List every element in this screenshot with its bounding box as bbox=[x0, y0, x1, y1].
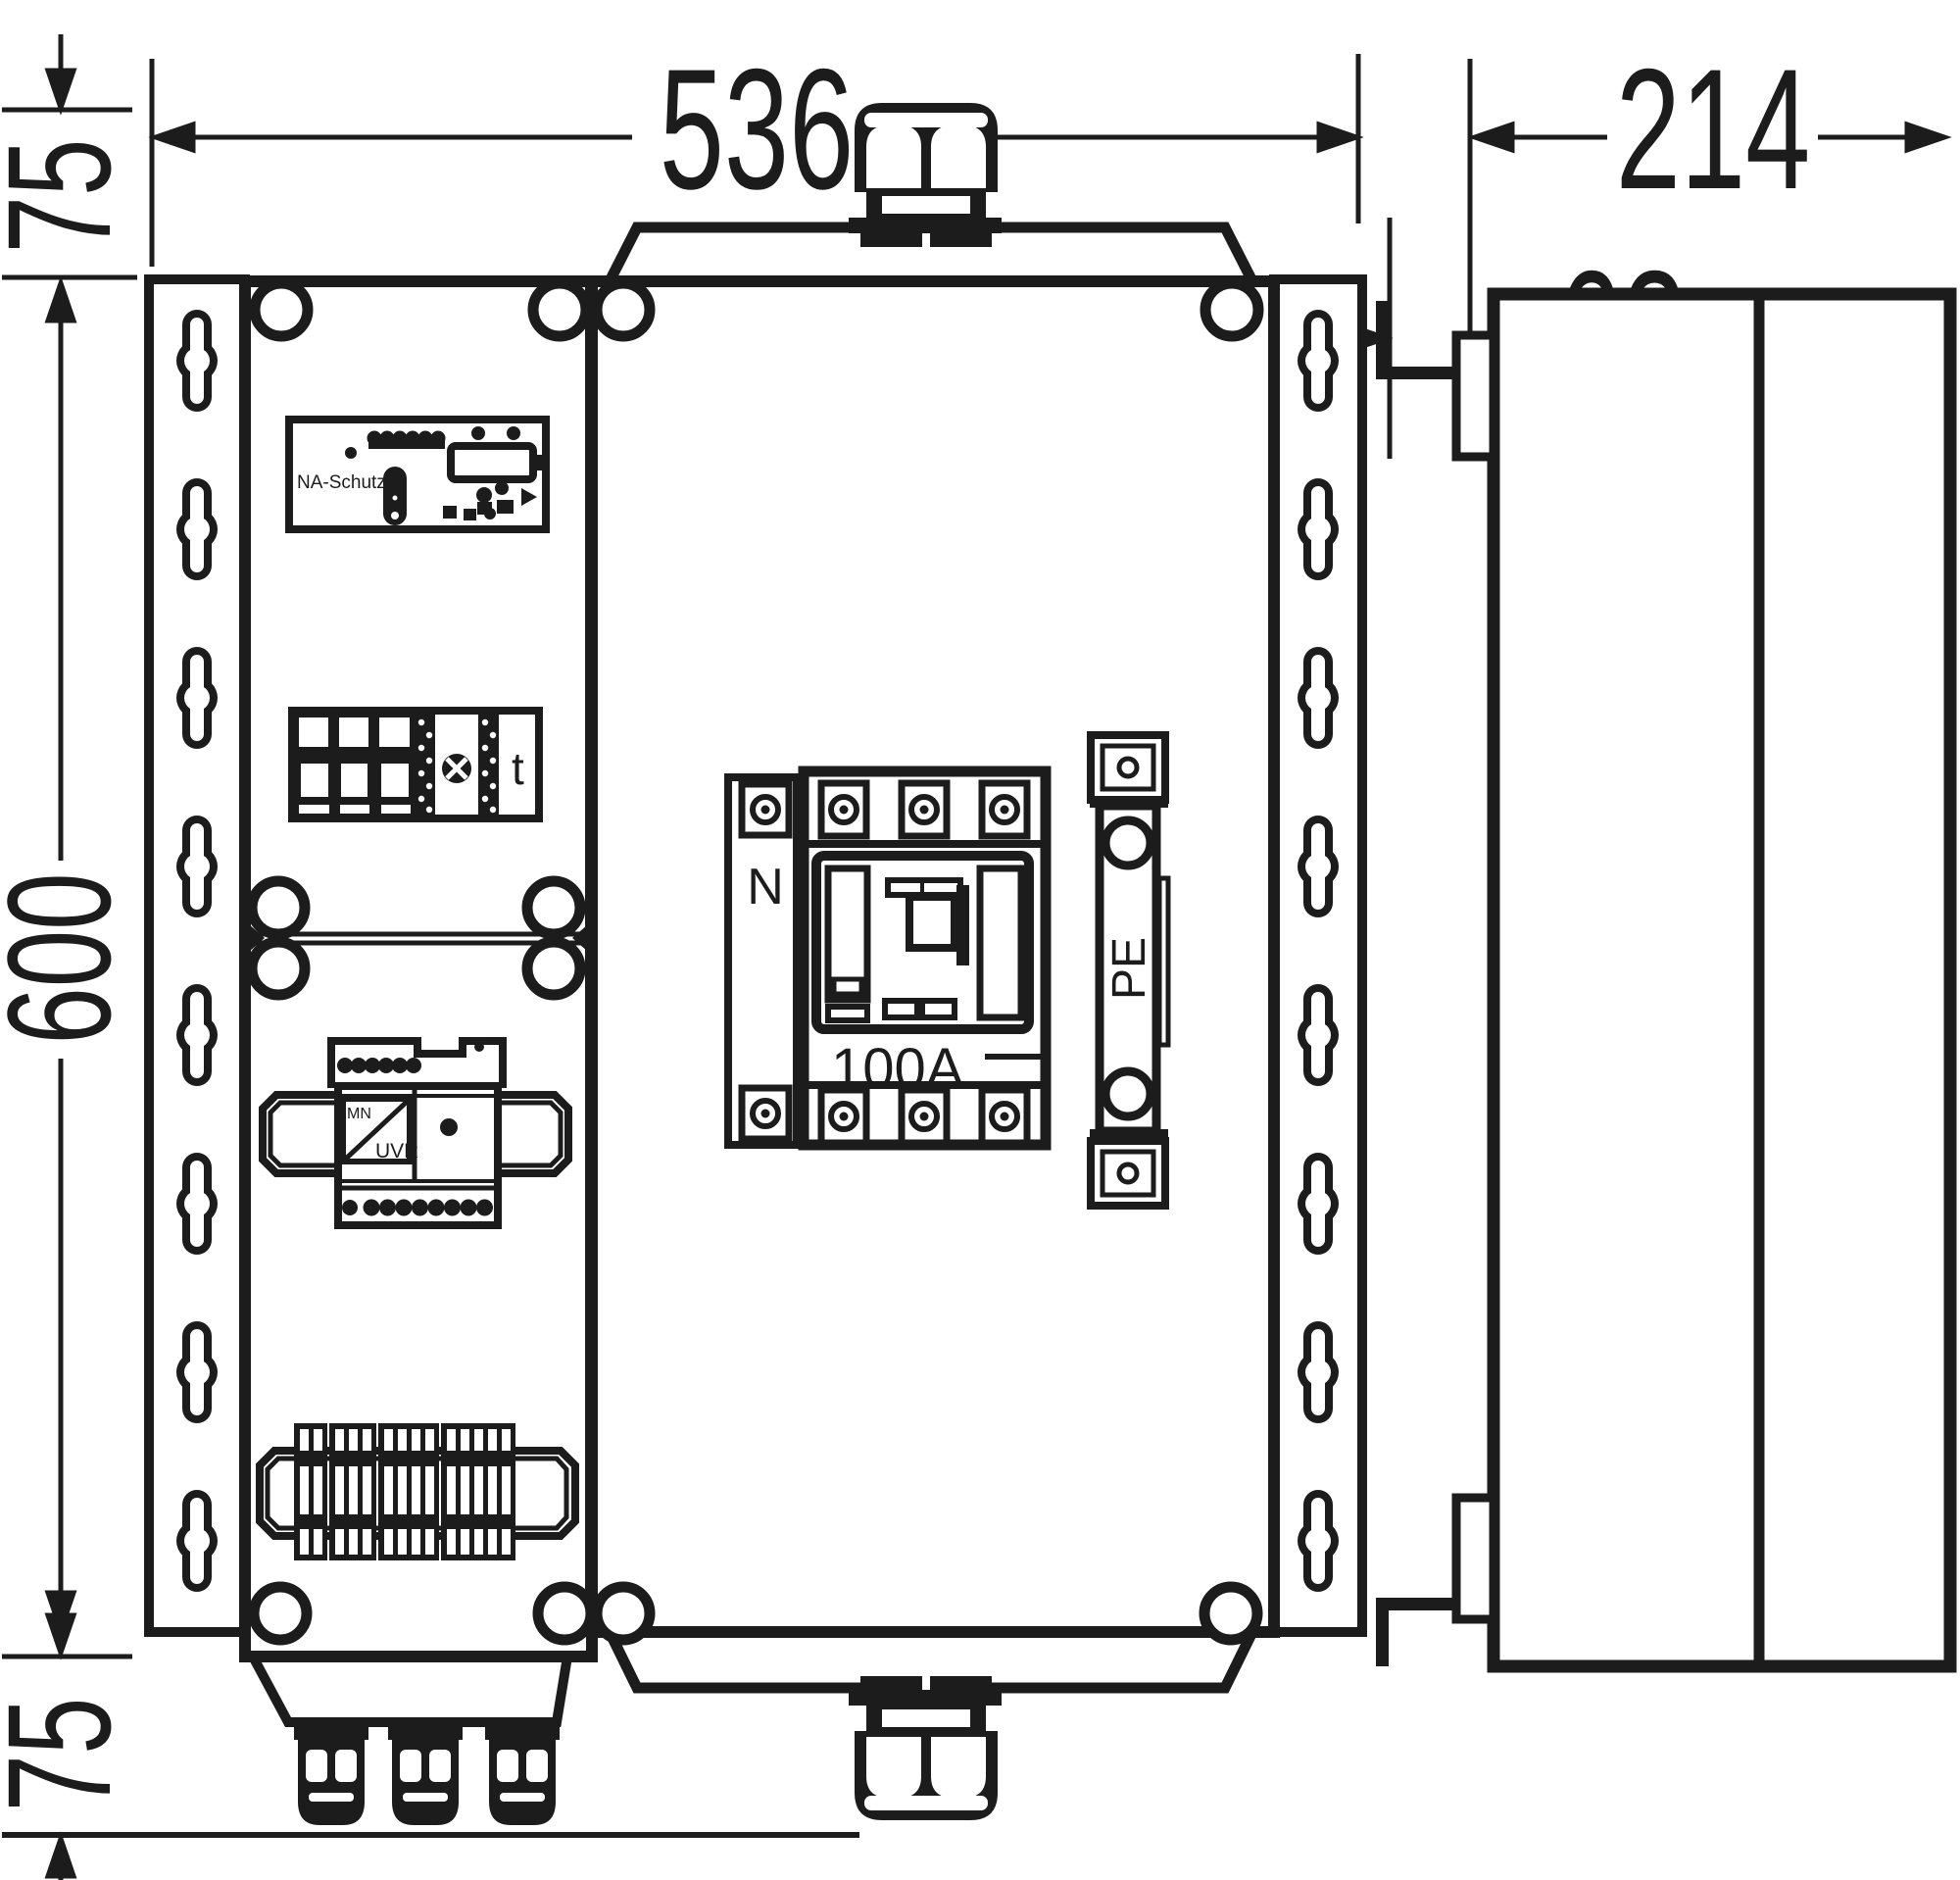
mounting-slot bbox=[1298, 310, 1339, 412]
mounting-slot bbox=[1298, 478, 1339, 580]
uvr-label: UVR bbox=[375, 1140, 418, 1163]
dim-label-214: 214 bbox=[1616, 33, 1811, 224]
main-switch-100a: N 100A bbox=[728, 771, 1046, 1145]
cover-screw bbox=[1205, 283, 1258, 336]
wall-bracket-bottom bbox=[1376, 1498, 1494, 1666]
neutral-label: N bbox=[747, 859, 784, 915]
switch-toggle bbox=[909, 897, 955, 948]
cover-screw bbox=[255, 283, 308, 336]
wall-bracket-top bbox=[1376, 301, 1494, 457]
left-mounting-flange bbox=[149, 279, 245, 1632]
cover-screw bbox=[252, 881, 305, 934]
cover-screw bbox=[527, 942, 580, 995]
contactor-timer-module: t bbox=[292, 711, 539, 818]
mounting-slot bbox=[176, 310, 218, 412]
side-view bbox=[1376, 294, 1950, 1666]
mounting-slot bbox=[1298, 816, 1339, 917]
dim-label-536: 536 bbox=[660, 33, 855, 224]
mn-label: MN bbox=[347, 1106, 371, 1122]
dim-label-75-top: 75 bbox=[0, 139, 141, 254]
terminal-screw bbox=[911, 1104, 937, 1129]
terminal-screw bbox=[992, 1104, 1017, 1129]
mounting-slot bbox=[176, 478, 218, 580]
cover-screw bbox=[538, 1587, 591, 1640]
mounting-slot bbox=[1298, 1490, 1339, 1592]
small-cable-gland bbox=[294, 1722, 368, 1825]
cover-screw bbox=[252, 942, 305, 995]
cover-screw bbox=[1204, 1587, 1257, 1640]
bottom-cable-gland bbox=[849, 1676, 1002, 1820]
timer-label: t bbox=[512, 743, 524, 794]
top-cable-gland bbox=[849, 103, 1002, 247]
mounting-slot bbox=[1298, 984, 1339, 1086]
mounting-slot bbox=[176, 1321, 218, 1423]
drawing-svg: 536 75 600 75 214 62 bbox=[0, 0, 1960, 1880]
terminal-screw bbox=[831, 797, 857, 822]
dim-label-75-bottom: 75 bbox=[0, 1698, 141, 1812]
cover-screw bbox=[597, 283, 650, 336]
mounting-slot bbox=[176, 984, 218, 1086]
cover-screw bbox=[254, 1587, 307, 1640]
terminal-screw bbox=[911, 797, 937, 822]
mounting-slot bbox=[1298, 1321, 1339, 1423]
cover-screw bbox=[597, 1587, 650, 1640]
mounting-slot bbox=[176, 1153, 218, 1255]
mounting-slot bbox=[176, 1490, 218, 1592]
small-cable-gland bbox=[485, 1722, 560, 1825]
terminal-screw bbox=[992, 797, 1017, 822]
right-mounting-flange bbox=[1274, 279, 1362, 1632]
small-cable-gland bbox=[388, 1722, 463, 1825]
pe-label: PE bbox=[1103, 937, 1155, 1000]
mounting-slot bbox=[176, 647, 218, 749]
mounting-slot bbox=[176, 816, 218, 917]
terminal-screw bbox=[753, 797, 778, 822]
cover-screw bbox=[527, 881, 580, 934]
mounting-slot bbox=[1298, 1153, 1339, 1255]
na-schutz-label: NA-Schutz bbox=[297, 472, 386, 493]
dim-label-600: 600 bbox=[0, 872, 141, 1044]
mounting-slot bbox=[1298, 647, 1339, 749]
field-divider bbox=[585, 281, 595, 1632]
technical-drawing-enclosure: 536 75 600 75 214 62 bbox=[0, 0, 1960, 1880]
terminal-screw bbox=[831, 1104, 857, 1129]
na-schutz-module: NA-Schutz bbox=[289, 420, 546, 529]
pe-busbar: PE bbox=[1090, 735, 1168, 1206]
left-field-bottom-skirt bbox=[253, 1657, 567, 1722]
switch-rating-label: 100A bbox=[831, 1037, 964, 1101]
terminal-screw bbox=[753, 1101, 778, 1126]
cover-screw bbox=[533, 283, 586, 336]
